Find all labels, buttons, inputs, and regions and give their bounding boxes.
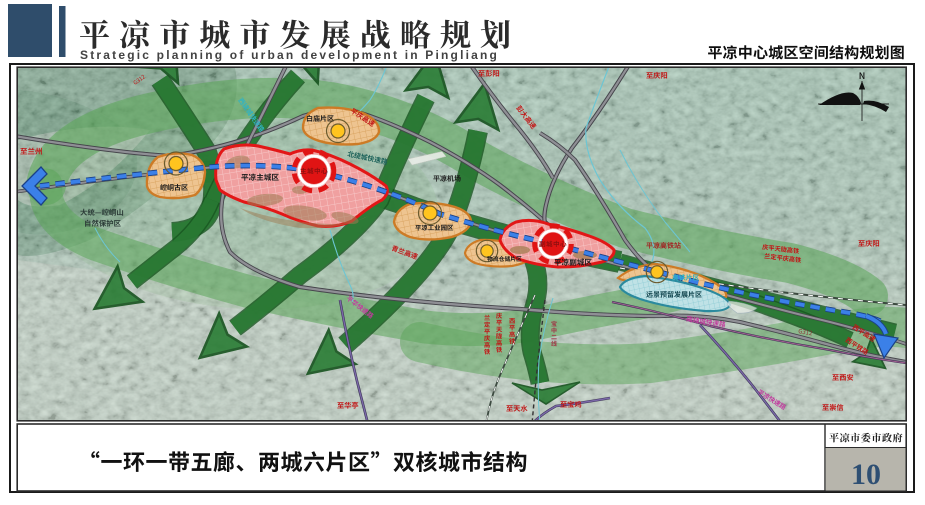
svg-text:10: 10	[851, 458, 881, 491]
svg-text:Strategic planning of urban de: Strategic planning of urban development …	[80, 48, 499, 62]
